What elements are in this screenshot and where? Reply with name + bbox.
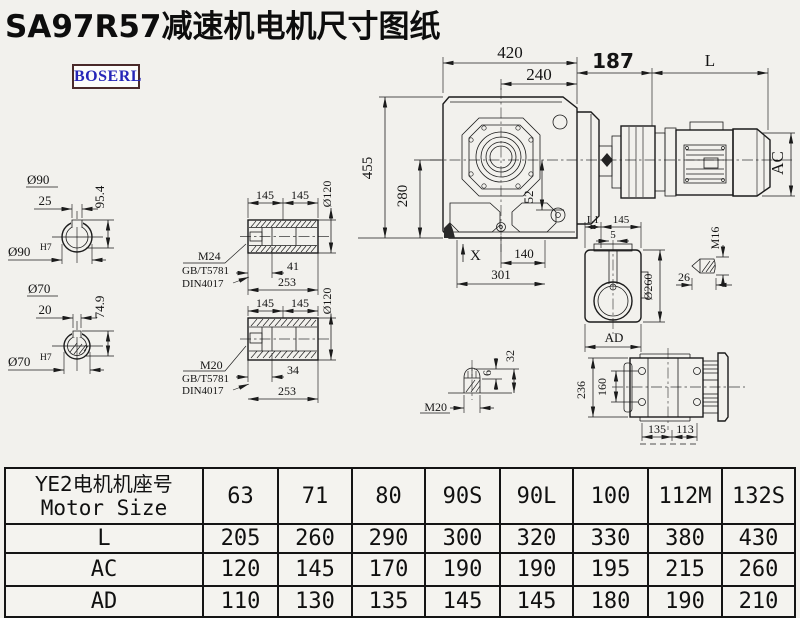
table-header-row: YE2电机机座号 Motor Size 63 71 80 90S 90L 100… — [5, 468, 795, 524]
table-row-L: L 205 260 290 300 320 330 380 430 — [5, 524, 795, 553]
label-gbt5781-bottom: GB/T5781 — [182, 373, 229, 385]
dim-455: 455 — [360, 157, 376, 180]
cell: 130 — [278, 586, 352, 617]
dim-5: 5 — [610, 229, 616, 241]
size-col: 132S — [722, 468, 795, 524]
dim-52: 52 — [521, 191, 536, 204]
dim-bore90: Ø90 — [8, 244, 30, 259]
dim-dia120-top: Ø120 — [320, 181, 334, 208]
label-gbt5781-top: GB/T5781 — [182, 265, 229, 277]
dim-AC: AC — [768, 151, 787, 175]
dim-420: 420 — [497, 43, 523, 62]
dim-236: 236 — [574, 381, 588, 399]
header-en: Motor Size — [6, 496, 202, 521]
size-col: 90L — [500, 468, 573, 524]
dim-140: 140 — [514, 246, 534, 261]
size-col: 90S — [425, 468, 500, 524]
row-label: L — [5, 524, 203, 553]
dim-95-4: 95.4 — [92, 185, 107, 208]
dim-key20: 20 — [39, 302, 52, 317]
cell: 190 — [425, 553, 500, 586]
page: { "page": { "title": "SA97R57减速机电机尺寸图纸",… — [0, 0, 800, 613]
size-col: 80 — [352, 468, 425, 524]
oil-plug — [444, 222, 455, 238]
dim-113: 113 — [676, 422, 694, 436]
dim-135: 135 — [648, 422, 666, 436]
dim-280: 280 — [395, 185, 411, 208]
dim-160: 160 — [595, 378, 609, 396]
cell: 195 — [573, 553, 648, 586]
cell: 190 — [500, 553, 573, 586]
cell: 380 — [648, 524, 722, 553]
dim-32: 32 — [503, 350, 517, 362]
cell: 300 — [425, 524, 500, 553]
cell: 145 — [278, 553, 352, 586]
dim-301: 301 — [491, 267, 511, 282]
cell: 120 — [203, 553, 278, 586]
dim-AD: AD — [605, 330, 624, 345]
dim-145b: 145 — [291, 188, 309, 202]
cell: 210 — [722, 586, 795, 617]
dim-145c: 145 — [256, 296, 274, 310]
front-view-dimensions: 420 240 455 280 52 X 140 301 — [358, 43, 577, 288]
dim-34: 34 — [287, 363, 299, 377]
size-col: 71 — [278, 468, 352, 524]
cell: 145 — [500, 586, 573, 617]
cell: 110 — [203, 586, 278, 617]
dim-145a: 145 — [256, 188, 274, 202]
dim-m16: M16 — [708, 227, 722, 250]
cell: 145 — [425, 586, 500, 617]
cell: 260 — [278, 524, 352, 553]
label-m20: M20 — [200, 358, 223, 372]
table-header-label: YE2电机机座号 Motor Size — [5, 468, 203, 524]
technical-drawing: 420 240 455 280 52 X 140 301 187 L AC — [0, 0, 800, 462]
label-din4017-top: DIN4017 — [182, 278, 224, 290]
dim-dia120-bottom: Ø120 — [320, 288, 334, 315]
cell: 290 — [352, 524, 425, 553]
row-label: AC — [5, 553, 203, 586]
stud-m20: M20 6 32 — [420, 350, 519, 414]
dim-bore70-fit: H7 — [40, 353, 52, 363]
shaft-end-view-90: Ø90 25 95.4 Ø90 H7 — [8, 172, 114, 264]
cell: 430 — [722, 524, 795, 553]
cell: 180 — [573, 586, 648, 617]
cell: 135 — [352, 586, 425, 617]
cell: 205 — [203, 524, 278, 553]
dim-bore90-fit: H7 — [40, 243, 52, 253]
cell: 215 — [648, 553, 722, 586]
hollow-shaft-bottom: 145 145 Ø120 34 253 M20 GB/T5781 DIN4017 — [182, 288, 336, 403]
dim-dia90: Ø90 — [27, 172, 49, 187]
size-col: 63 — [203, 468, 278, 524]
dim-bore70: Ø70 — [8, 354, 30, 369]
dim-m20-stud: M20 — [424, 400, 447, 414]
dim-145d: 145 — [291, 296, 309, 310]
centerlines — [52, 88, 793, 444]
row-label: AD — [5, 586, 203, 617]
motor-rear-view: 236 160 135 113 — [574, 353, 728, 441]
dim-key25: 25 — [39, 193, 52, 208]
dim-240: 240 — [526, 65, 552, 84]
cell: 260 — [722, 553, 795, 586]
dim-dia260: Ø260 — [641, 274, 655, 301]
dim-6: 6 — [480, 370, 494, 376]
header-cn: YE2电机机座号 — [6, 472, 202, 496]
dim-L1: L1 — [587, 214, 599, 226]
table-row-AD: AD 110 130 135 145 145 180 190 210 — [5, 586, 795, 617]
motor-size-table: YE2电机机座号 Motor Size 63 71 80 90S 90L 100… — [4, 467, 796, 618]
hollow-shaft-top: 145 145 Ø120 41 253 M24 GB/T5781 DIN4017 — [182, 181, 336, 295]
dim-L: L — [705, 51, 715, 70]
gearbox-side-view: L1 145 5 Ø260 AD — [585, 214, 665, 352]
dim-145-side: 145 — [613, 214, 630, 226]
table-row-AC: AC 120 145 170 190 190 195 215 260 — [5, 553, 795, 586]
shaft-end-view-70: Ø70 20 74.9 Ø70 H7 — [8, 281, 114, 374]
label-din4017-bottom: DIN4017 — [182, 385, 224, 397]
cell: 320 — [500, 524, 573, 553]
dim-x: X — [470, 248, 481, 264]
cell: 190 — [648, 586, 722, 617]
size-col: 100 — [573, 468, 648, 524]
dim-253-top: 253 — [278, 275, 296, 289]
dim-26: 26 — [678, 270, 690, 284]
cell: 330 — [573, 524, 648, 553]
dim-41: 41 — [287, 259, 299, 273]
dim-dia70: Ø70 — [28, 281, 50, 296]
dim-187: 187 — [592, 49, 634, 73]
label-m24: M24 — [198, 249, 221, 263]
cell: 170 — [352, 553, 425, 586]
coupling-diamond — [601, 153, 613, 167]
dim-74-9: 74.9 — [92, 296, 107, 319]
dim-253-bottom: 253 — [278, 384, 296, 398]
gearbox-front-view — [443, 97, 599, 238]
stud-m16: M16 26 — [676, 227, 732, 290]
size-col: 112M — [648, 468, 722, 524]
